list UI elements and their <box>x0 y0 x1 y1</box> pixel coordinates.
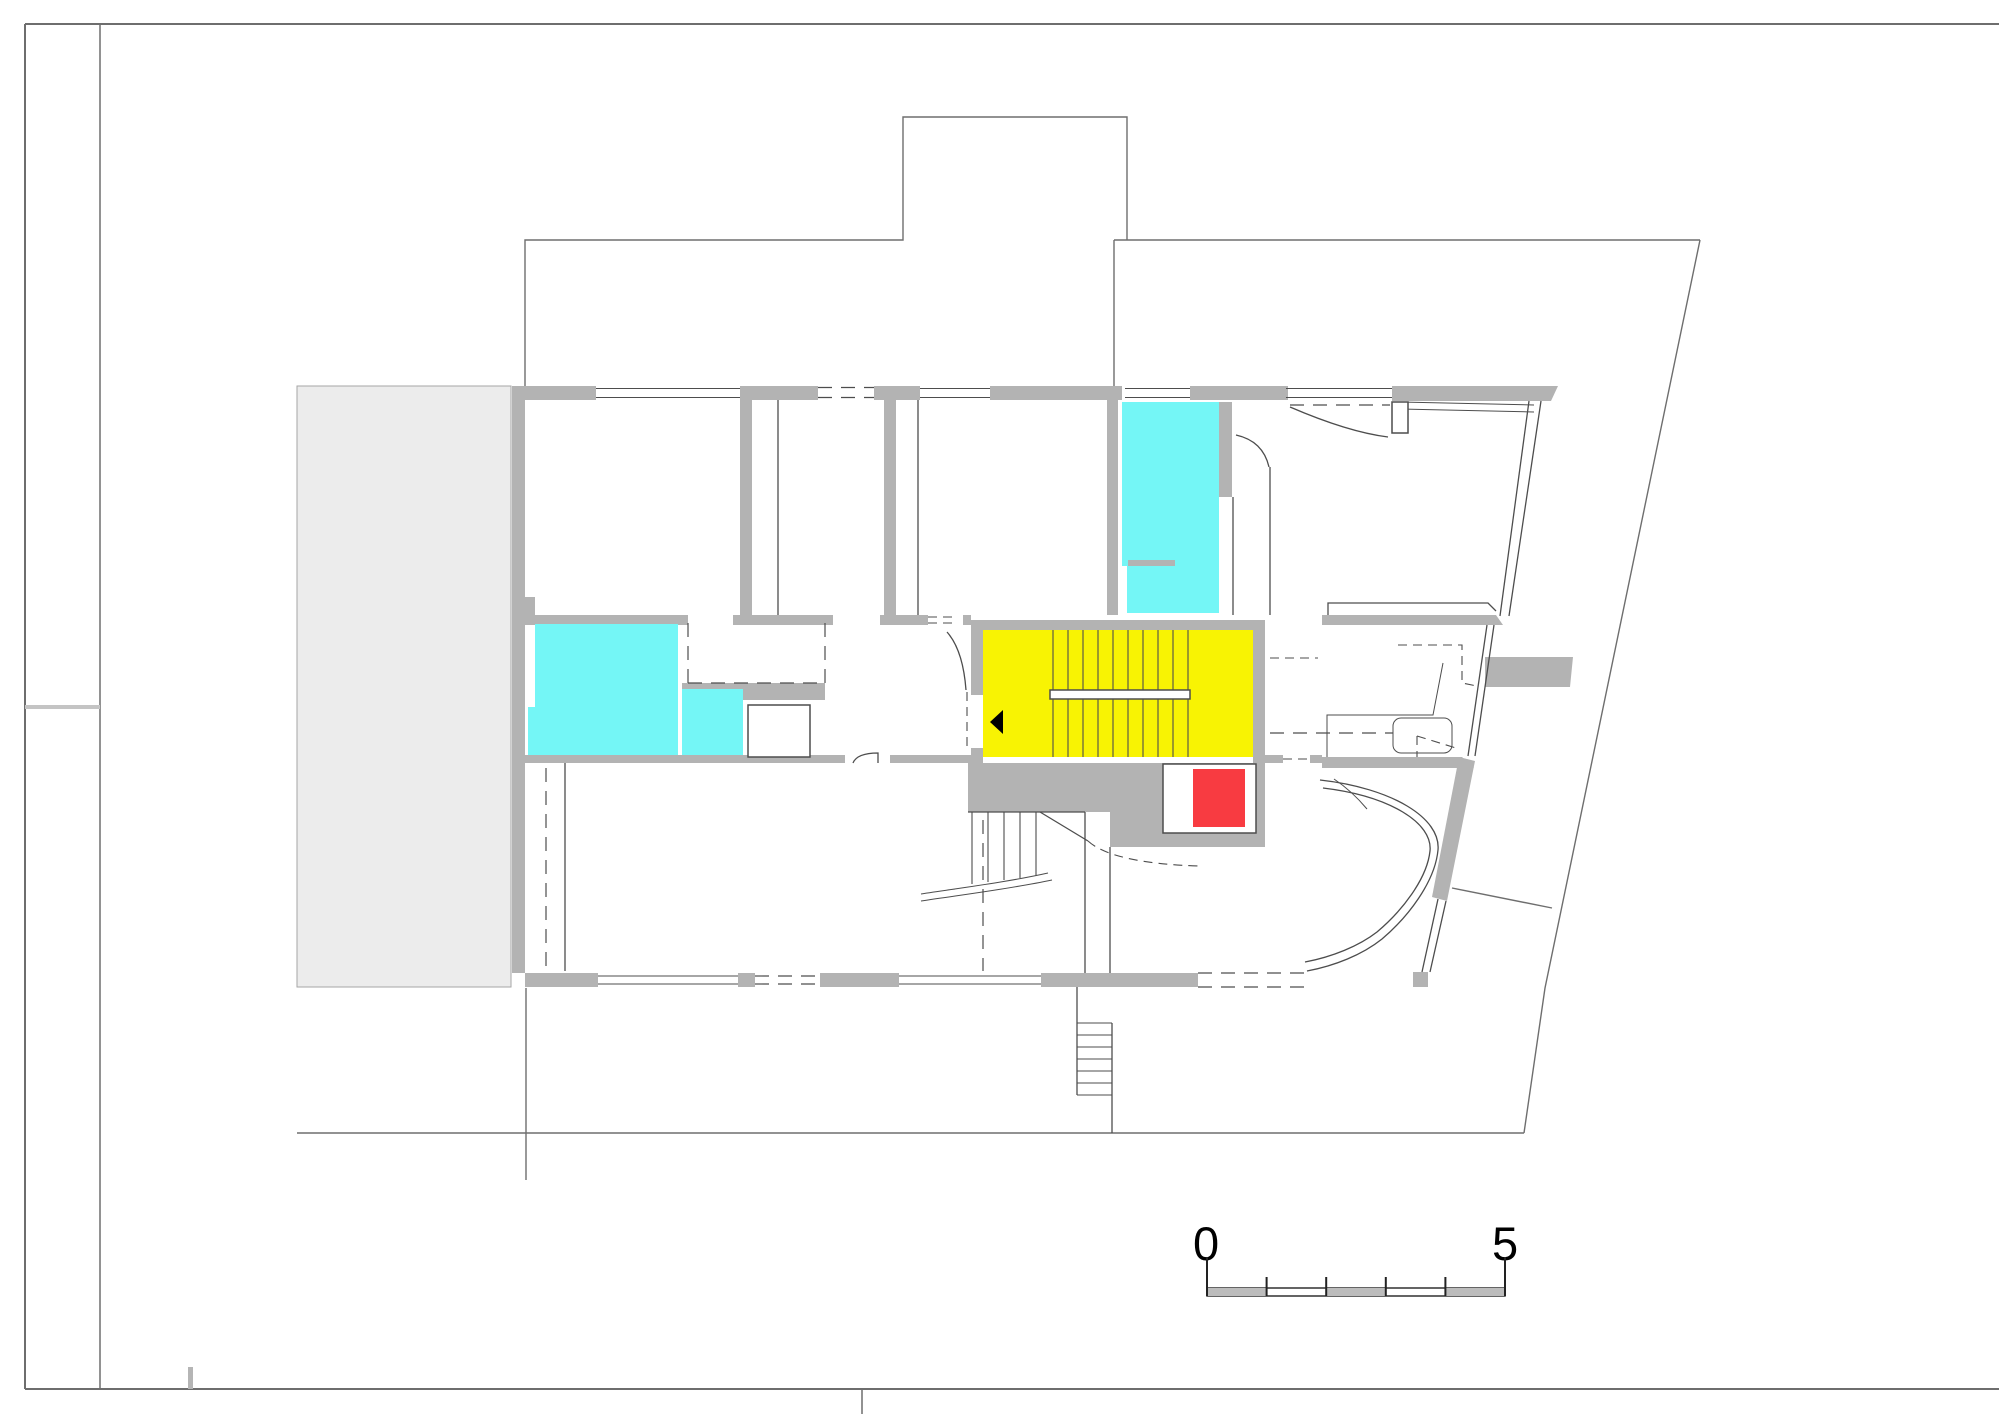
scale-bar: 0 5 <box>1193 1217 1518 1296</box>
wc-room-west <box>682 689 743 755</box>
bath-room-north <box>1122 402 1219 613</box>
terrace-deck <box>297 386 511 987</box>
door-leaf <box>1392 402 1408 433</box>
drawing-sheet: 0 5 <box>0 0 2000 1414</box>
stair-entry-door-swing <box>947 632 966 690</box>
bath-room-west <box>528 624 678 755</box>
fixture <box>1393 718 1452 753</box>
stair-handrail <box>1050 690 1190 699</box>
border-tick <box>188 1367 193 1389</box>
duct-room <box>748 705 810 757</box>
stair-core <box>947 620 1265 847</box>
entry-door-swing <box>1290 407 1388 437</box>
exterior-stair <box>1077 987 1112 1133</box>
title-column-divider <box>25 705 100 709</box>
floor-plan-canvas: 0 5 <box>0 0 2000 1414</box>
corridor-door-swing <box>853 753 878 763</box>
east-corridor <box>1270 645 1477 757</box>
elevator-highlight <box>1193 769 1245 827</box>
void-outline <box>688 623 825 683</box>
curved-room <box>1305 779 1438 971</box>
